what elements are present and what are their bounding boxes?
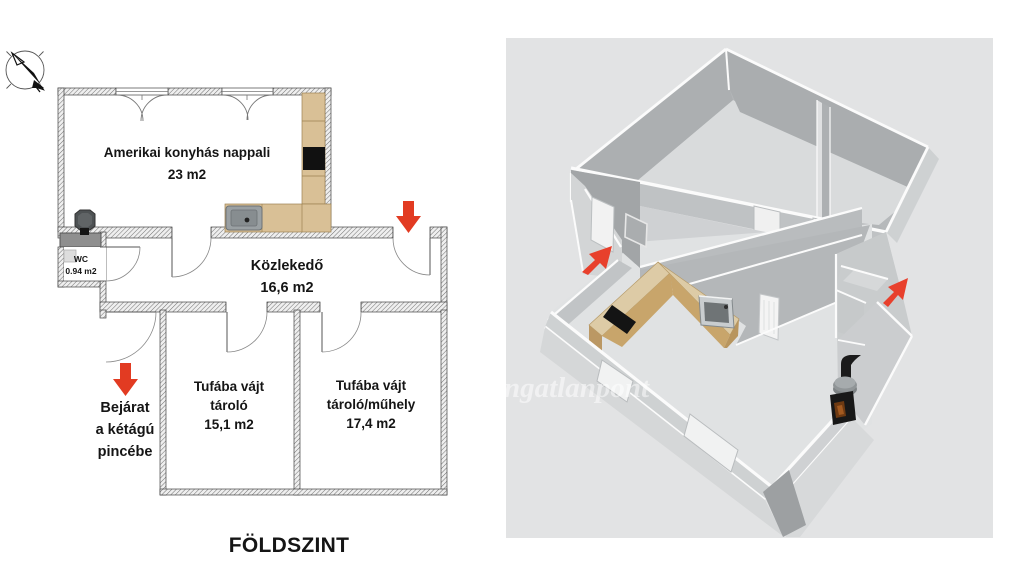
svg-text:Tufába vájt: Tufába vájt [194, 379, 265, 394]
svg-text:ngatlanpont: ngatlanpont [504, 372, 650, 404]
svg-text:0.94 m2: 0.94 m2 [65, 266, 96, 276]
svg-text:15,1 m2: 15,1 m2 [204, 417, 254, 432]
svg-text:FÖLDSZINT: FÖLDSZINT [229, 534, 350, 557]
svg-text:pincébe: pincébe [98, 444, 153, 460]
svg-text:tároló: tároló [210, 398, 248, 413]
svg-text:Amerikai konyhás nappali: Amerikai konyhás nappali [104, 145, 271, 160]
svg-text:a kétágú: a kétágú [96, 422, 155, 438]
svg-text:Bejárat: Bejárat [100, 400, 149, 416]
svg-text:17,4 m2: 17,4 m2 [346, 416, 396, 431]
svg-text:WC: WC [74, 254, 88, 264]
svg-text:Tufába vájt: Tufába vájt [336, 378, 407, 393]
svg-text:16,6 m2: 16,6 m2 [260, 280, 313, 296]
svg-text:tároló/műhely: tároló/műhely [327, 397, 416, 412]
svg-text:23 m2: 23 m2 [168, 167, 206, 182]
svg-text:Közlekedő: Közlekedő [251, 258, 324, 274]
